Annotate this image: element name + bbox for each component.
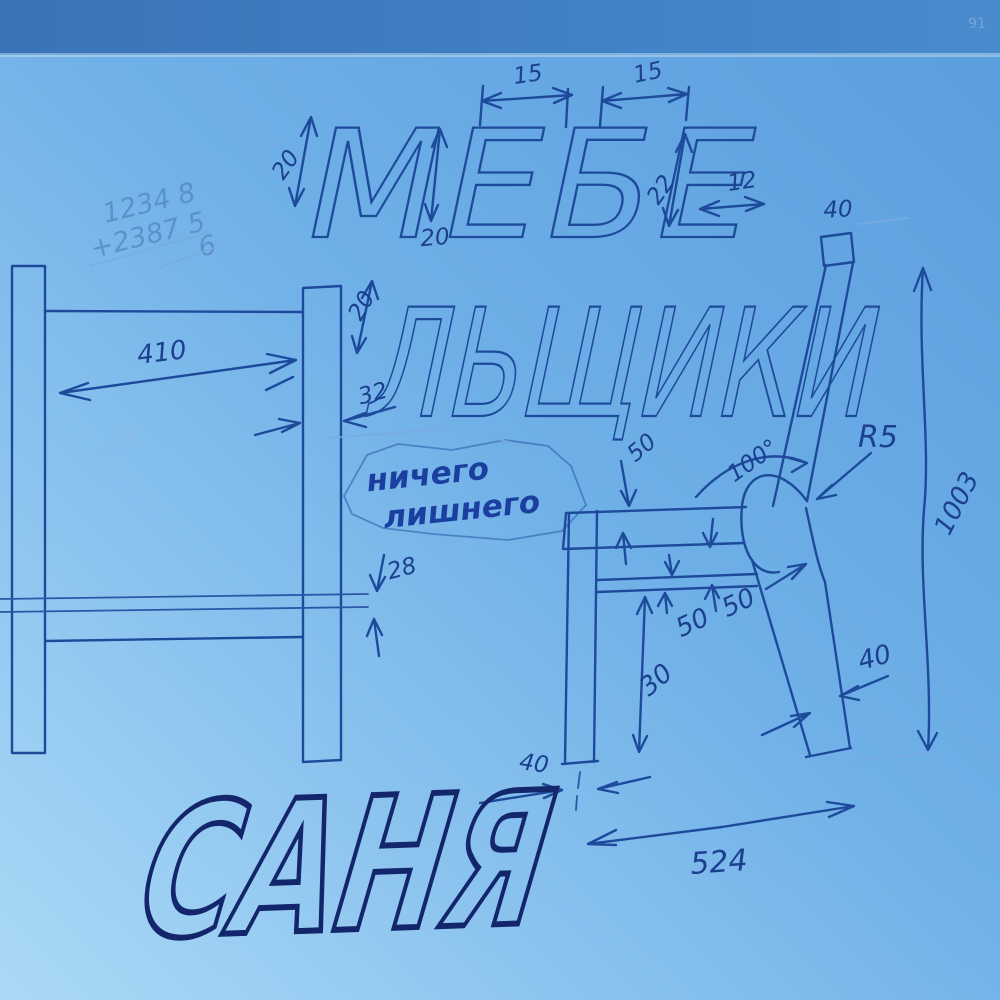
sketch-canvas: 91 1234 8 +2387 5 6 МЕБЕ 20 20 15 15 22 … [0,0,1000,1000]
dim-label-seat-depth: 524 [689,843,749,882]
dim-label-e2-width: 12 [726,167,759,197]
paper-edge-highlight [0,53,1000,57]
title-word-line1: МЕБЕ [290,98,777,273]
signature-lettering: САНЯ [113,752,580,981]
title-lettering-row2: ЛЬЩИКИ 20 [343,277,896,452]
dim-label-back-radius: R5 [858,420,898,455]
dim-label-e-height: 20 [419,224,450,252]
corner-mark: 91 [968,16,986,32]
photo-of-sketch: 91 1234 8 +2387 5 6 МЕБЕ 20 20 15 15 22 … [0,0,1000,1000]
dim-label-back-post-top: 40 [823,196,854,223]
signature-word: САНЯ [113,752,580,981]
dim-label-e-width: 15 [512,60,545,90]
front-view-top-rail [45,311,303,312]
title-word-line2: ЛЬЩИКИ [354,277,896,452]
dim-label-frame-width: 410 [135,335,188,371]
